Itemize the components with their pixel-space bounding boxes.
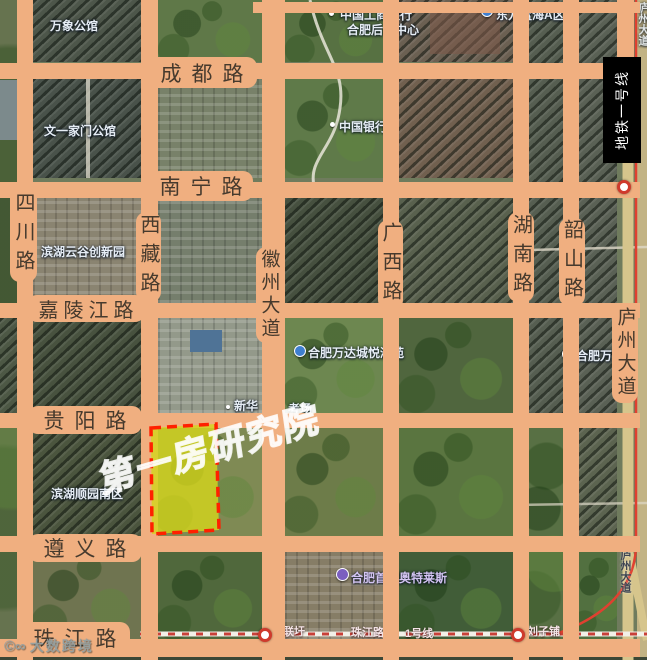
road-label-guiyang: 贵阳路 (28, 406, 142, 434)
road-label-sichuan: 四川路 (10, 188, 37, 282)
road-label-hunan: 湖南路 (508, 212, 534, 302)
metro-line-1-infobox: 地铁一号线 (603, 57, 641, 163)
credit-logo: ©∞ (4, 638, 26, 655)
road-label-jialingjiang: 嘉陵江路 (27, 295, 145, 322)
road-label-text: 四川路 (9, 192, 38, 279)
metro-line-1-infobox-text: 地铁一号线 (612, 70, 632, 150)
metro-station-icon (511, 628, 525, 642)
road-label-guangxi: 广西路 (378, 220, 403, 310)
road-label-text: 韶山路 (558, 219, 587, 306)
road-label-text: 西藏路 (134, 214, 163, 301)
satellite-map: 万象公馆 中国工商银行 合肥后台中心 东方蓝海A区 中国银行 文一家门公馆 滨湖… (0, 0, 647, 660)
metro-station-icon (258, 628, 272, 642)
road-label-text: 遵义路 (34, 533, 137, 563)
road-label-text: 贵阳路 (34, 405, 137, 435)
road-label-text: 庐州大道 (612, 307, 639, 399)
road-label-huizhou: 徽州大道 (256, 247, 282, 343)
road-label-shaoshan: 韶山路 (559, 218, 585, 306)
road-label-chengdu: 成都路 (147, 57, 257, 88)
metro-station-icon (617, 180, 631, 194)
map-credit: ©∞ 大数跨境 (4, 636, 94, 656)
road-label-text: 嘉陵江路 (34, 294, 139, 323)
road-label-luzhou: 庐州大道 (612, 303, 638, 403)
road-label-text: 湖南路 (507, 214, 536, 301)
road-label-nanning: 南宁路 (149, 171, 253, 201)
credit-text: 大数跨境 (30, 636, 94, 656)
road-label-zunyi: 遵义路 (28, 534, 142, 562)
road-label-text: 成都路 (151, 58, 254, 88)
road-label-text: 广西路 (376, 222, 405, 309)
road-label-xizang: 西藏路 (136, 212, 161, 302)
road-label-text: 徽州大道 (256, 249, 283, 341)
road-label-text: 南宁路 (150, 171, 253, 201)
